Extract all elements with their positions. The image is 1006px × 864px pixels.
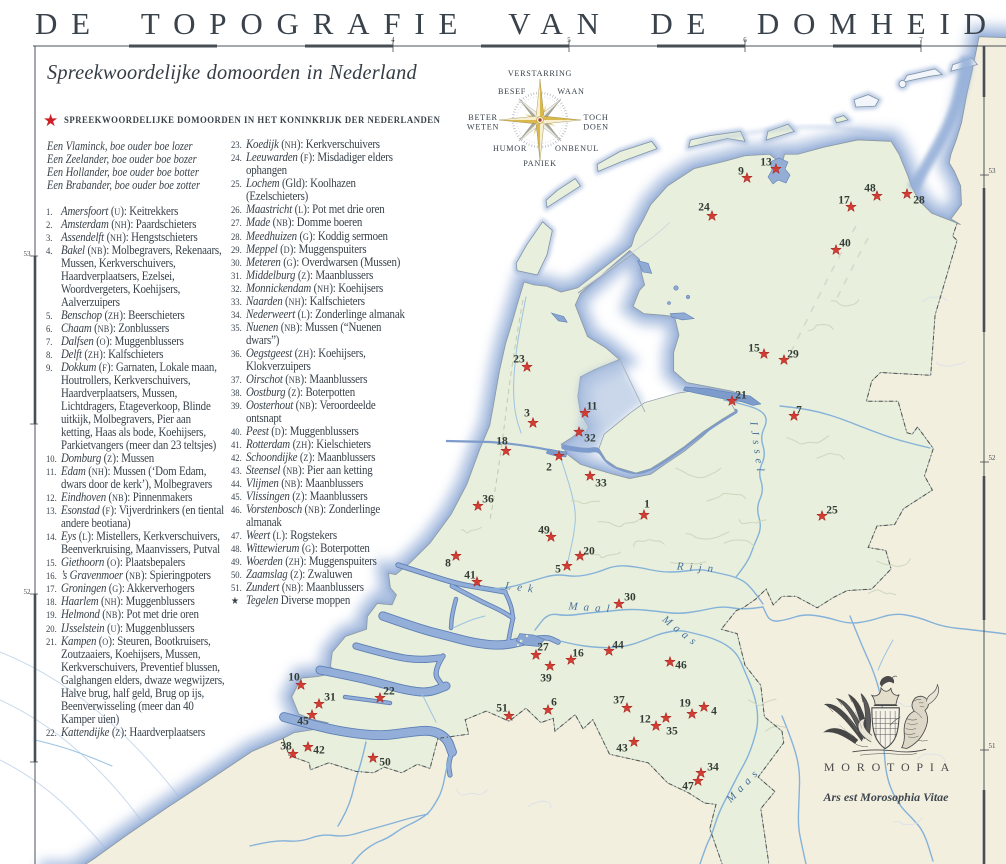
svg-text:34: 34 [707,762,719,774]
svg-text:11: 11 [587,401,598,413]
svg-text:6: 6 [551,697,557,709]
svg-text:49: 49 [538,525,550,537]
svg-text:39: 39 [540,673,552,685]
svg-text:12: 12 [639,714,651,726]
svg-text:9: 9 [738,166,744,178]
svg-text:WAAN: WAAN [557,87,584,96]
svg-text:HUMOR: HUMOR [493,144,527,153]
svg-text:41: 41 [464,570,476,582]
svg-text:38: 38 [280,741,292,753]
svg-text:45: 45 [297,716,309,728]
svg-text:27: 27 [537,642,549,654]
svg-text:35: 35 [666,726,678,738]
svg-text:50: 50 [379,757,391,769]
svg-text:29: 29 [787,349,799,361]
svg-text:TOCH: TOCH [584,113,609,122]
svg-text:42: 42 [313,745,325,757]
svg-text:BESEF: BESEF [498,87,526,96]
svg-text:13: 13 [760,157,772,169]
svg-text:15: 15 [748,343,760,355]
svg-text:28: 28 [913,195,925,207]
svg-text:10: 10 [288,672,300,684]
svg-text:52: 52 [989,454,997,462]
svg-text:48: 48 [864,183,876,195]
svg-text:47: 47 [682,781,694,793]
svg-text:7: 7 [796,405,802,417]
svg-text:16: 16 [572,648,584,660]
svg-text:33: 33 [595,478,607,490]
svg-text:2: 2 [546,462,552,474]
svg-text:32: 32 [584,433,596,445]
svg-text:ONBENUL: ONBENUL [555,144,599,153]
svg-text:DOEN: DOEN [583,123,609,132]
svg-text:44: 44 [612,640,624,652]
svg-text:43: 43 [616,743,628,755]
svg-text:23: 23 [513,354,525,366]
svg-text:4: 4 [711,706,717,718]
svg-text:22: 22 [383,686,395,698]
svg-text:37: 37 [613,695,625,707]
svg-text:VERSTARRING: VERSTARRING [508,69,572,78]
svg-text:52: 52 [24,588,32,596]
svg-text:WETEN: WETEN [467,123,499,132]
svg-text:53: 53 [989,167,997,175]
svg-text:3: 3 [524,408,530,420]
svg-text:17: 17 [838,195,850,207]
svg-text:18: 18 [496,436,508,448]
svg-text:MOROTOPIA: MOROTOPIA [824,760,956,774]
svg-text:40: 40 [839,238,851,250]
svg-text:19: 19 [679,698,691,710]
svg-text:8: 8 [445,558,451,570]
svg-text:30: 30 [624,592,636,604]
svg-text:51: 51 [989,742,997,750]
svg-text:46: 46 [675,660,687,672]
svg-text:53: 53 [24,250,32,258]
svg-text:PANIEK: PANIEK [523,159,556,168]
svg-text:1: 1 [644,499,650,511]
svg-text:31: 31 [324,692,336,704]
svg-text:20: 20 [583,546,595,558]
svg-text:36: 36 [482,494,494,506]
svg-text:Ars est Morosophia Vitae: Ars est Morosophia Vitae [822,790,949,804]
svg-text:21: 21 [735,390,747,402]
svg-text:24: 24 [698,202,710,214]
svg-text:BETER: BETER [468,113,497,122]
svg-text:51: 51 [496,703,508,715]
svg-text:5: 5 [555,564,561,576]
svg-text:25: 25 [826,505,838,517]
